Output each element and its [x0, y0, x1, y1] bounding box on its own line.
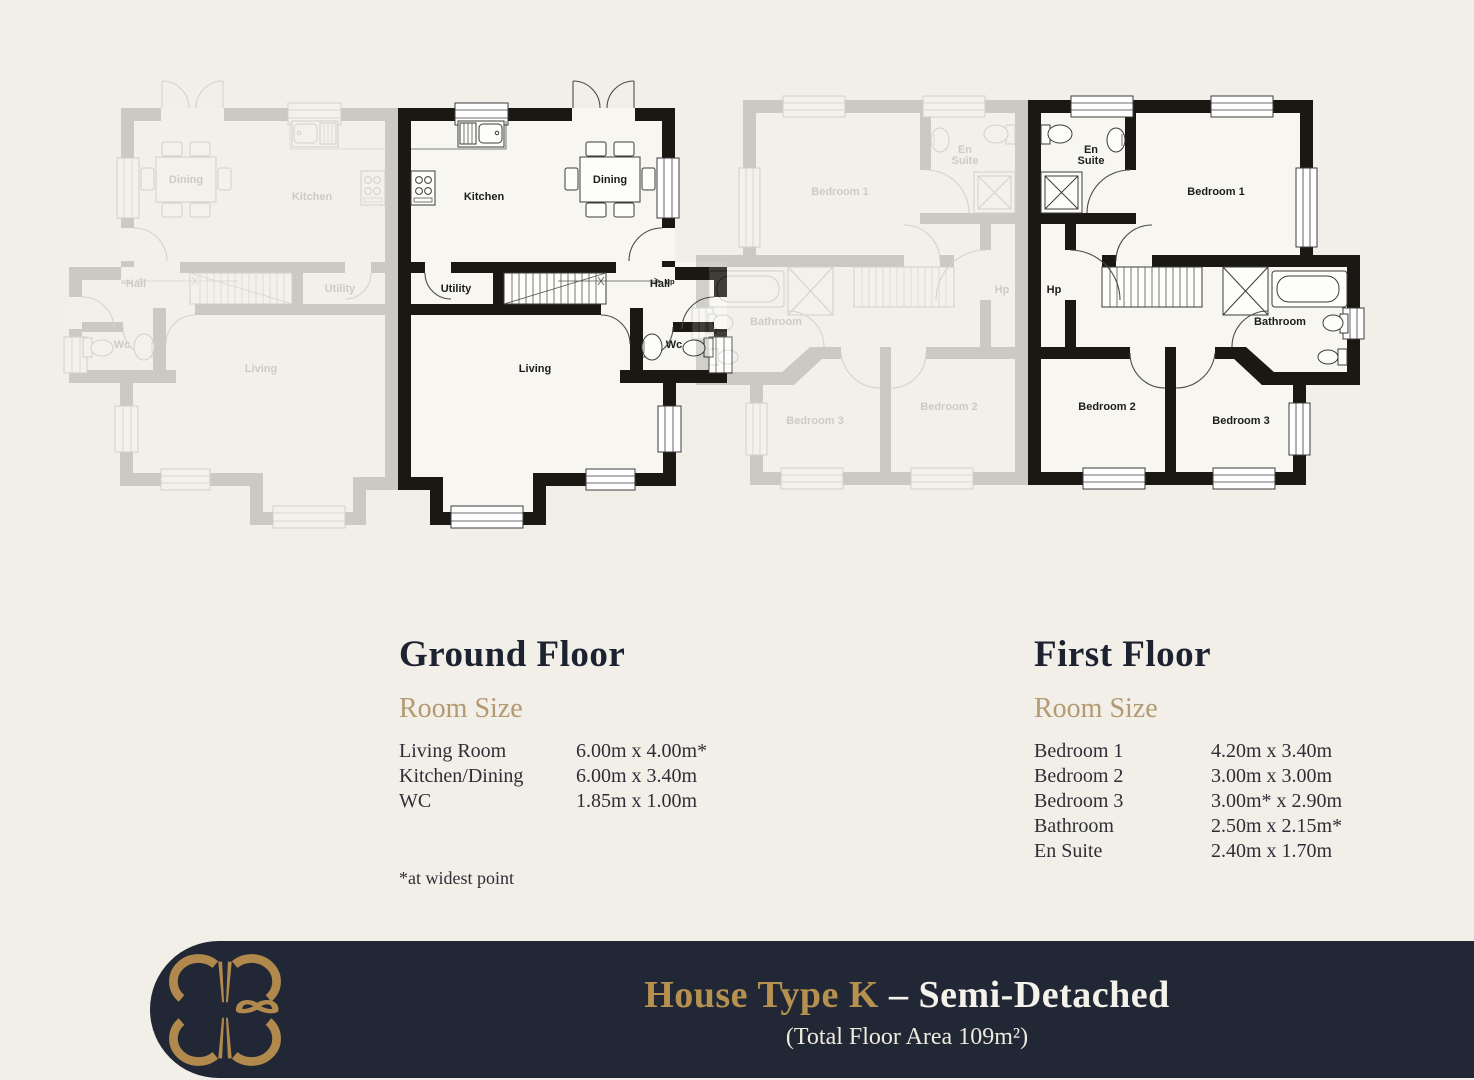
ground-floor-plan: KitchenDiningUtilityHallWcLivingup	[398, 75, 738, 535]
room-size-row: Bedroom 1 4.20m x 3.40m	[1034, 739, 1464, 764]
room-name: Bedroom 2	[1034, 764, 1211, 789]
footer-title: House Type K – Semi-Detached	[644, 973, 1170, 1017]
first-floor-room-table: Bedroom 1 4.20m x 3.40m Bedroom 2 3.00m …	[1034, 739, 1464, 864]
room-dimensions: 1.85m x 1.00m	[576, 789, 697, 814]
room-name: Bedroom 3	[1034, 789, 1211, 814]
room-label: Utility	[325, 283, 356, 295]
room-dimensions: 3.00m x 3.00m	[1211, 764, 1332, 789]
first-floor-room-size-label: Room Size	[1034, 693, 1464, 725]
ground-floor-room-table: Living Room 6.00m x 4.00m* Kitchen/Dinin…	[399, 739, 829, 814]
footer-banner: House Type K – Semi-Detached (Total Floo…	[150, 941, 1474, 1078]
window	[1296, 168, 1317, 247]
brochure-page: KitchenDiningUtilityHallWcLivingup Kitch…	[0, 0, 1474, 1080]
wc-basin	[642, 334, 662, 360]
room-size-row: Living Room 6.00m x 4.00m*	[399, 739, 829, 764]
ground-floor-heading: Ground Floor	[399, 633, 829, 676]
room-name: Bathroom	[1034, 814, 1211, 839]
room-label: Hp	[1047, 284, 1062, 296]
total-floor-area: (Total Floor Area 109m²)	[786, 1024, 1028, 1051]
first-floor-plan-ghost: EnSuiteBedroom 1HpBathroomBedroom 2Bedro…	[688, 95, 1028, 505]
window	[657, 158, 679, 218]
room-dimensions: 3.00m* x 2.90m	[1211, 789, 1342, 814]
shower	[1041, 172, 1082, 213]
window	[451, 506, 523, 528]
ground-floor-room-size-label: Room Size	[399, 693, 829, 725]
kitchen-sink	[458, 121, 504, 147]
hob	[411, 171, 435, 205]
window	[1289, 403, 1310, 455]
window	[1071, 96, 1133, 117]
stairs	[504, 273, 606, 304]
ground-floor-plan-ghost: KitchenDiningUtilityHallWcLivingup	[58, 75, 398, 535]
stairs	[1102, 267, 1202, 307]
ensuite-basin	[1107, 128, 1125, 152]
brand-logo	[167, 954, 283, 1066]
window	[658, 406, 681, 452]
room-size-row: WC 1.85m x 1.00m	[399, 789, 829, 814]
footer-text: House Type K – Semi-Detached (Total Floo…	[330, 941, 1474, 1080]
first-floor-plan: EnSuiteBedroom 1HpBathroomBedroom 2Bedro…	[1028, 95, 1368, 505]
first-floor-section: First Floor Room Size Bedroom 1 4.20m x …	[1034, 633, 1464, 864]
window	[586, 469, 635, 490]
room-label: up	[665, 277, 675, 286]
room-label: Bedroom 3	[1212, 415, 1269, 427]
window	[1083, 468, 1145, 489]
room-label: Bedroom 2	[1078, 401, 1135, 413]
room-dimensions: 6.00m x 4.00m*	[576, 739, 707, 764]
room-label: Living	[519, 363, 551, 375]
first-floor-heading: First Floor	[1034, 633, 1464, 676]
room-label: Bedroom 1	[1187, 186, 1244, 198]
room-label: up	[121, 277, 131, 286]
french-doors	[573, 81, 634, 108]
room-label: Living	[245, 363, 277, 375]
ensuite-toilet	[1041, 125, 1072, 144]
house-type-label: House Type K	[644, 974, 879, 1016]
ground-floor-plan-geometry	[398, 81, 732, 528]
room-label: Bathroom	[1254, 316, 1306, 328]
room-label: Dining	[593, 174, 627, 186]
ground-floor-section: Ground Floor Room Size Living Room 6.00m…	[399, 633, 829, 889]
room-label: Wc	[114, 339, 131, 351]
room-label: Kitchen	[292, 191, 333, 203]
house-style-label: Semi-Detached	[918, 974, 1169, 1016]
room-label: Kitchen	[464, 191, 505, 203]
airing-cupboard	[1223, 267, 1268, 315]
room-dimensions: 2.50m x 2.15m*	[1211, 814, 1342, 839]
room-label: Bedroom 1	[811, 186, 868, 198]
room-size-row: Bedroom 2 3.00m x 3.00m	[1034, 764, 1464, 789]
room-dimensions: 4.20m x 3.40m	[1211, 739, 1332, 764]
bathroom-toilet	[1318, 349, 1347, 365]
room-label: Utility	[441, 283, 472, 295]
room-dimensions: 2.40m x 1.70m	[1211, 839, 1332, 864]
room-label: Dining	[169, 174, 203, 186]
room-dimensions: 6.00m x 3.40m	[576, 764, 697, 789]
room-label: Hp	[995, 284, 1010, 296]
window	[1211, 96, 1273, 117]
room-name: Bedroom 1	[1034, 739, 1211, 764]
room-name: En Suite	[1034, 839, 1211, 864]
room-label: Bedroom 2	[920, 401, 977, 413]
room-name: WC	[399, 789, 576, 814]
window	[1213, 468, 1275, 489]
title-dash: –	[889, 974, 909, 1016]
room-size-row: Bedroom 3 3.00m* x 2.90m	[1034, 789, 1464, 814]
room-label: Wc	[666, 339, 683, 351]
footnote: *at widest point	[399, 868, 829, 889]
bathtub	[1272, 271, 1347, 307]
room-size-row: Kitchen/Dining 6.00m x 3.40m	[399, 764, 829, 789]
room-name: Living Room	[399, 739, 576, 764]
room-size-row: Bathroom 2.50m x 2.15m*	[1034, 814, 1464, 839]
room-name: Kitchen/Dining	[399, 764, 576, 789]
room-size-row: En Suite 2.40m x 1.70m	[1034, 839, 1464, 864]
room-label: Bathroom	[750, 316, 802, 328]
room-label: Bedroom 3	[786, 415, 843, 427]
